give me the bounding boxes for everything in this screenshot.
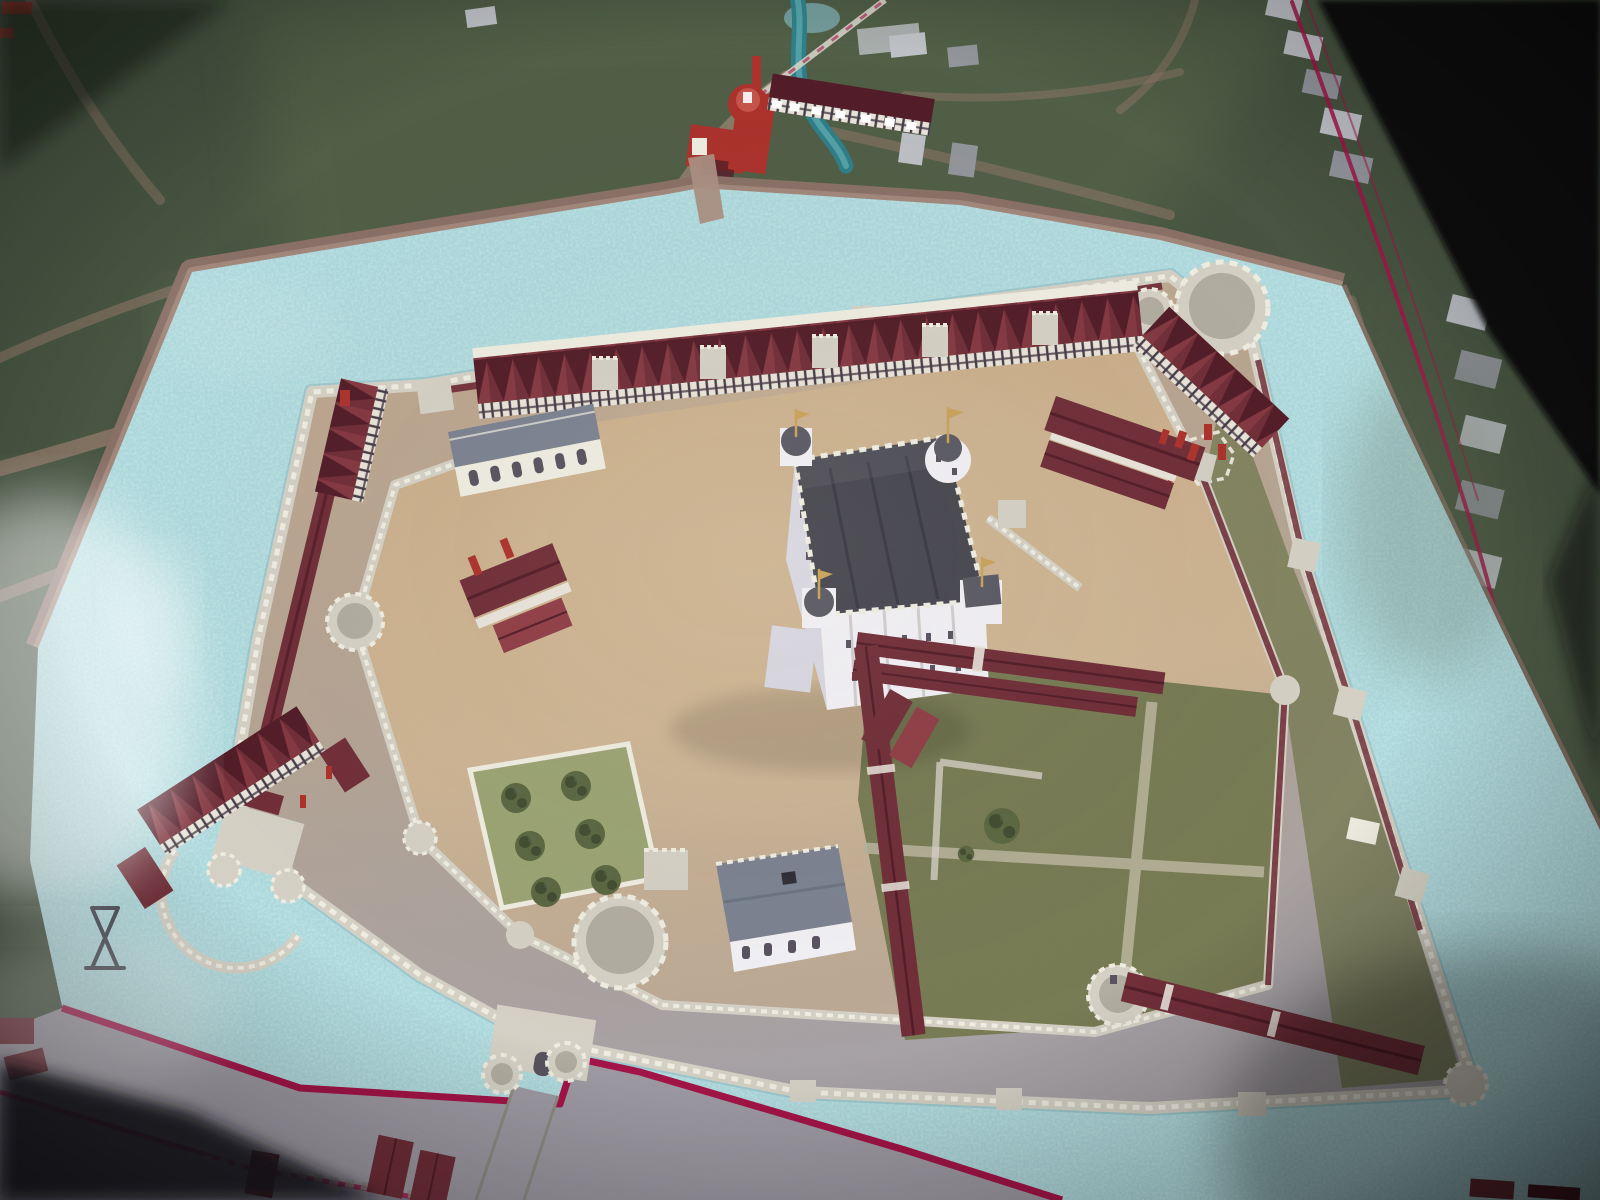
film-grain — [0, 0, 1600, 1200]
tower-of-london-model-photo: Dimly-lit museum photograph, taken from … — [0, 0, 1600, 1200]
model-photo-canvas: Dimly-lit museum photograph, taken from … — [0, 0, 1600, 1200]
